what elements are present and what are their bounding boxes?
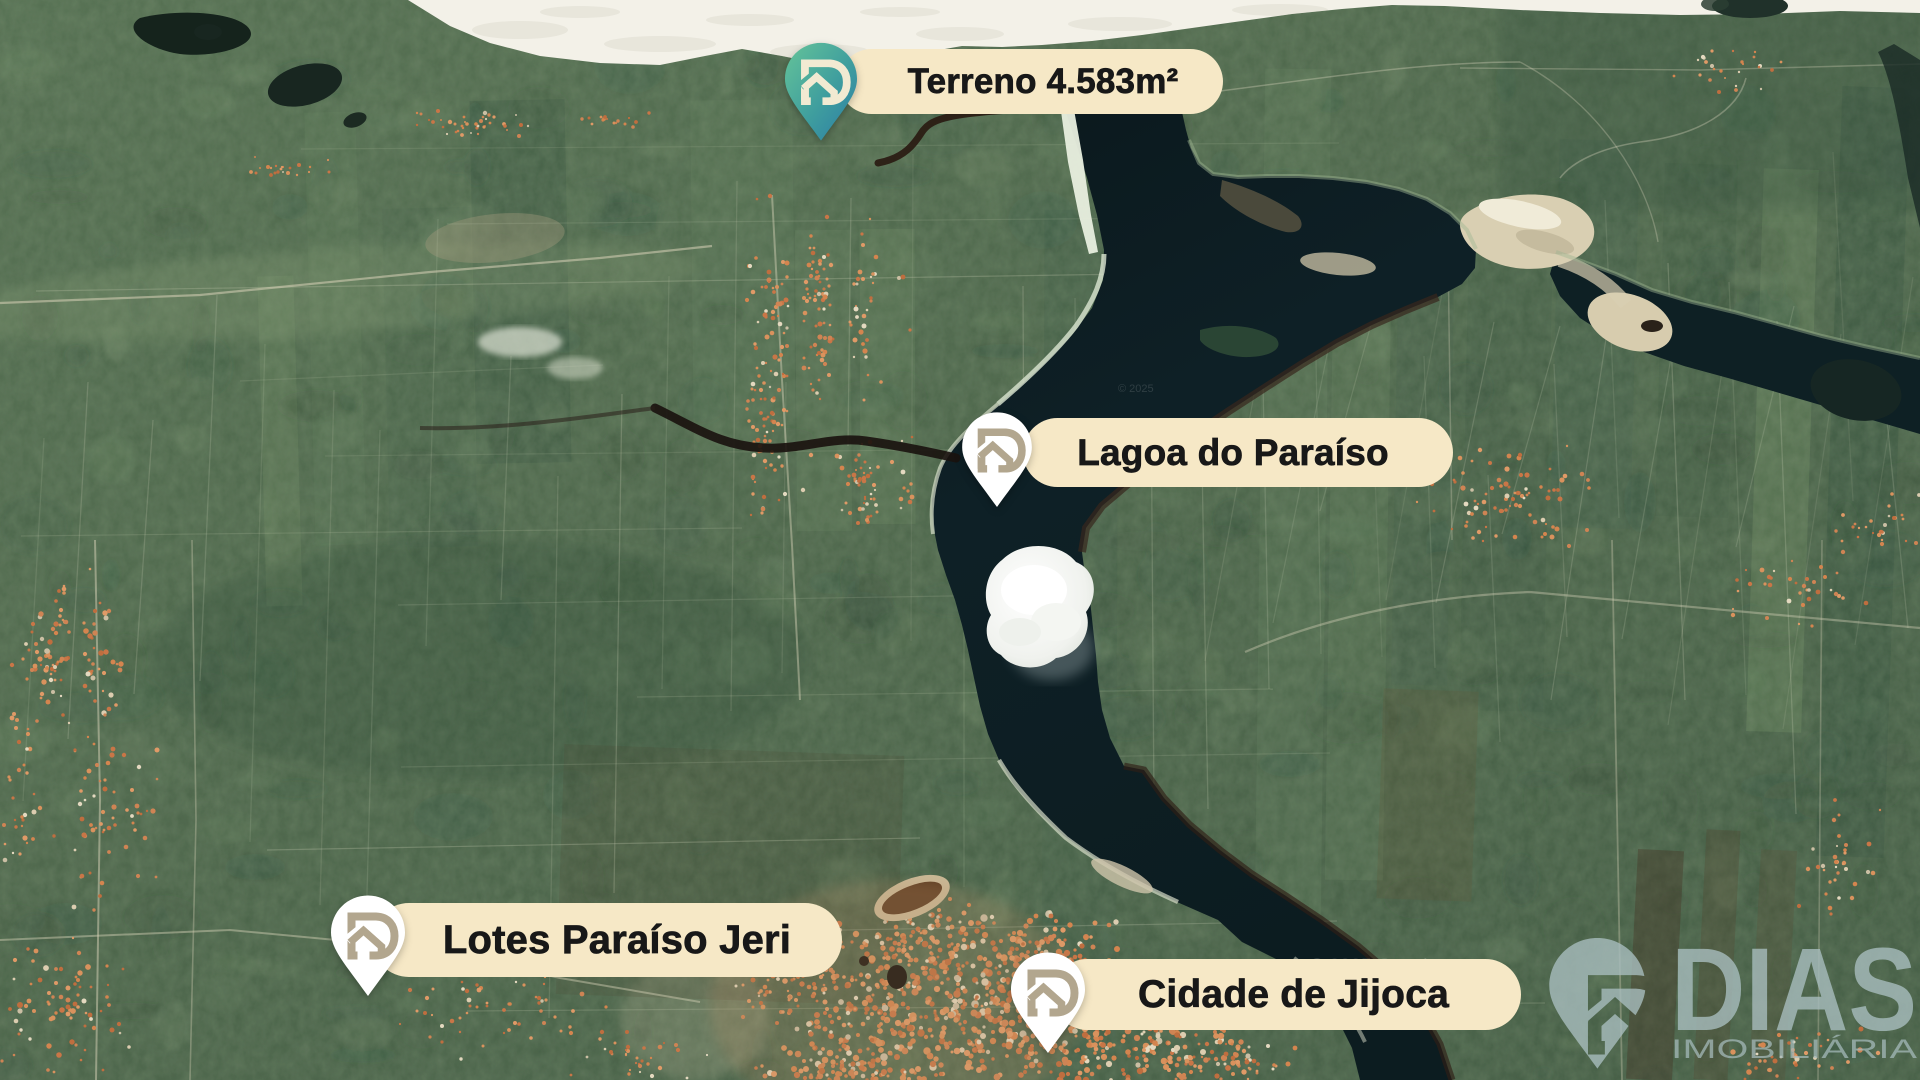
- svg-text:© 2025: © 2025: [1118, 383, 1154, 395]
- svg-text:IMOBILIÁRIA: IMOBILIÁRIA: [1671, 1034, 1917, 1064]
